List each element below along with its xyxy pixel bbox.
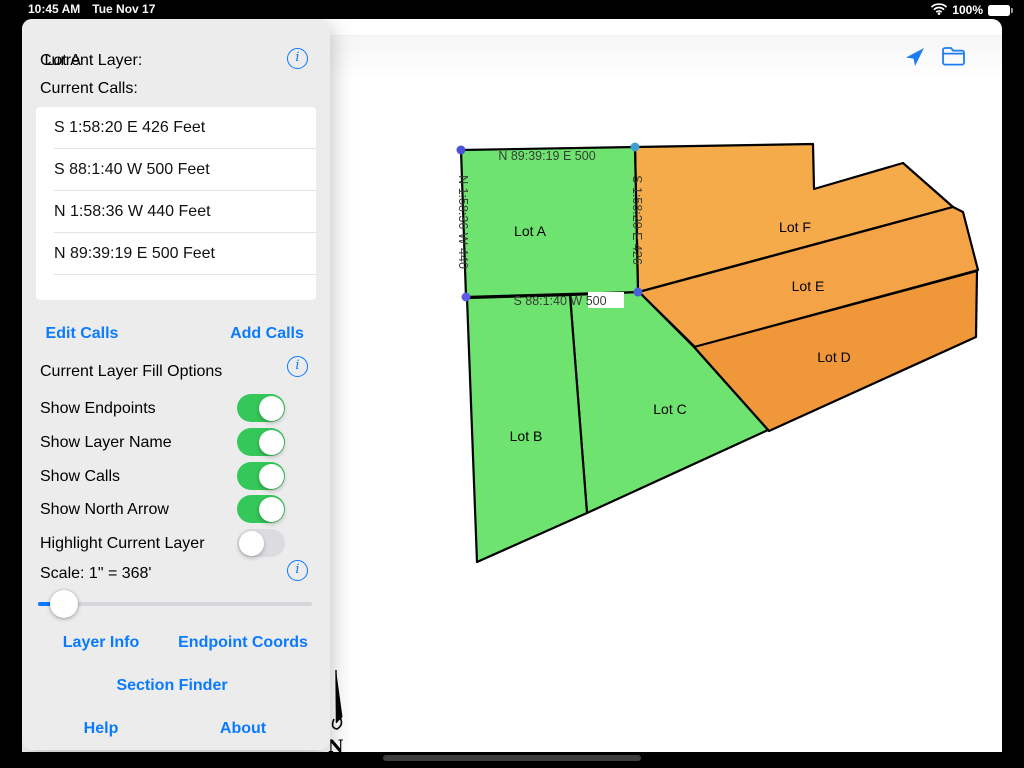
folder-icon[interactable] xyxy=(941,46,966,67)
toggle-label: Highlight Current Layer xyxy=(40,535,205,553)
endpoint-coords-button[interactable]: Endpoint Coords xyxy=(178,634,308,652)
scale-slider-track[interactable] xyxy=(38,602,312,606)
battery-percentage: 100% xyxy=(952,3,983,17)
battery-icon xyxy=(988,5,1010,16)
current-layer-label: Current Layer: Lot A xyxy=(40,52,44,70)
edit-calls-button[interactable]: Edit Calls xyxy=(46,325,119,343)
toggle-switch-show-north-arrow[interactable] xyxy=(237,495,285,523)
call-item[interactable]: N 1:58:36 W 440 Feet xyxy=(54,191,316,233)
help-button[interactable]: Help xyxy=(84,720,119,738)
control-panel: Current Layer: Lot A i Current Calls: S … xyxy=(22,19,330,750)
current-layer-value: Lot A xyxy=(44,52,80,70)
status-time: 10:45 AM xyxy=(28,2,80,16)
status-date: Tue Nov 17 xyxy=(92,2,155,16)
scale-label: Scale: 1" = 368' xyxy=(40,565,151,583)
status-bar: 10:45 AM Tue Nov 17 100% xyxy=(0,0,1024,19)
location-arrow-icon[interactable] xyxy=(905,47,925,67)
toggle-label: Show North Arrow xyxy=(40,501,169,519)
add-calls-button[interactable]: Add Calls xyxy=(230,325,304,343)
toggle-switch-highlight-current-layer[interactable] xyxy=(237,529,285,557)
scale-info-button[interactable]: i xyxy=(287,560,308,581)
toggle-label: Show Layer Name xyxy=(40,434,172,452)
current-calls-label: Current Calls: xyxy=(40,80,138,98)
layer-info-button[interactable]: Layer Info xyxy=(63,634,139,652)
toggle-switch-show-calls[interactable] xyxy=(237,462,285,490)
call-item[interactable]: N 89:39:19 E 500 Feet xyxy=(54,233,316,275)
section-finder-button[interactable]: Section Finder xyxy=(116,677,227,695)
calls-list: S 1:58:20 E 426 FeetS 88:1:40 W 500 Feet… xyxy=(36,107,316,300)
toggle-switch-show-endpoints[interactable] xyxy=(237,394,285,422)
toggle-label: Show Endpoints xyxy=(40,400,156,418)
call-item[interactable]: S 88:1:40 W 500 Feet xyxy=(54,149,316,191)
toggle-switch-show-layer-name[interactable] xyxy=(237,428,285,456)
about-button[interactable]: About xyxy=(220,720,266,738)
layer-info-icon-button[interactable]: i xyxy=(287,48,308,69)
fill-options-label: Current Layer Fill Options xyxy=(40,363,222,381)
scale-slider-thumb[interactable] xyxy=(50,590,78,618)
call-item[interactable]: S 1:58:20 E 426 Feet xyxy=(54,107,316,149)
fill-options-info-button[interactable]: i xyxy=(287,356,308,377)
wifi-icon xyxy=(931,2,947,18)
home-indicator[interactable] xyxy=(383,755,641,761)
toggle-label: Show Calls xyxy=(40,468,120,486)
